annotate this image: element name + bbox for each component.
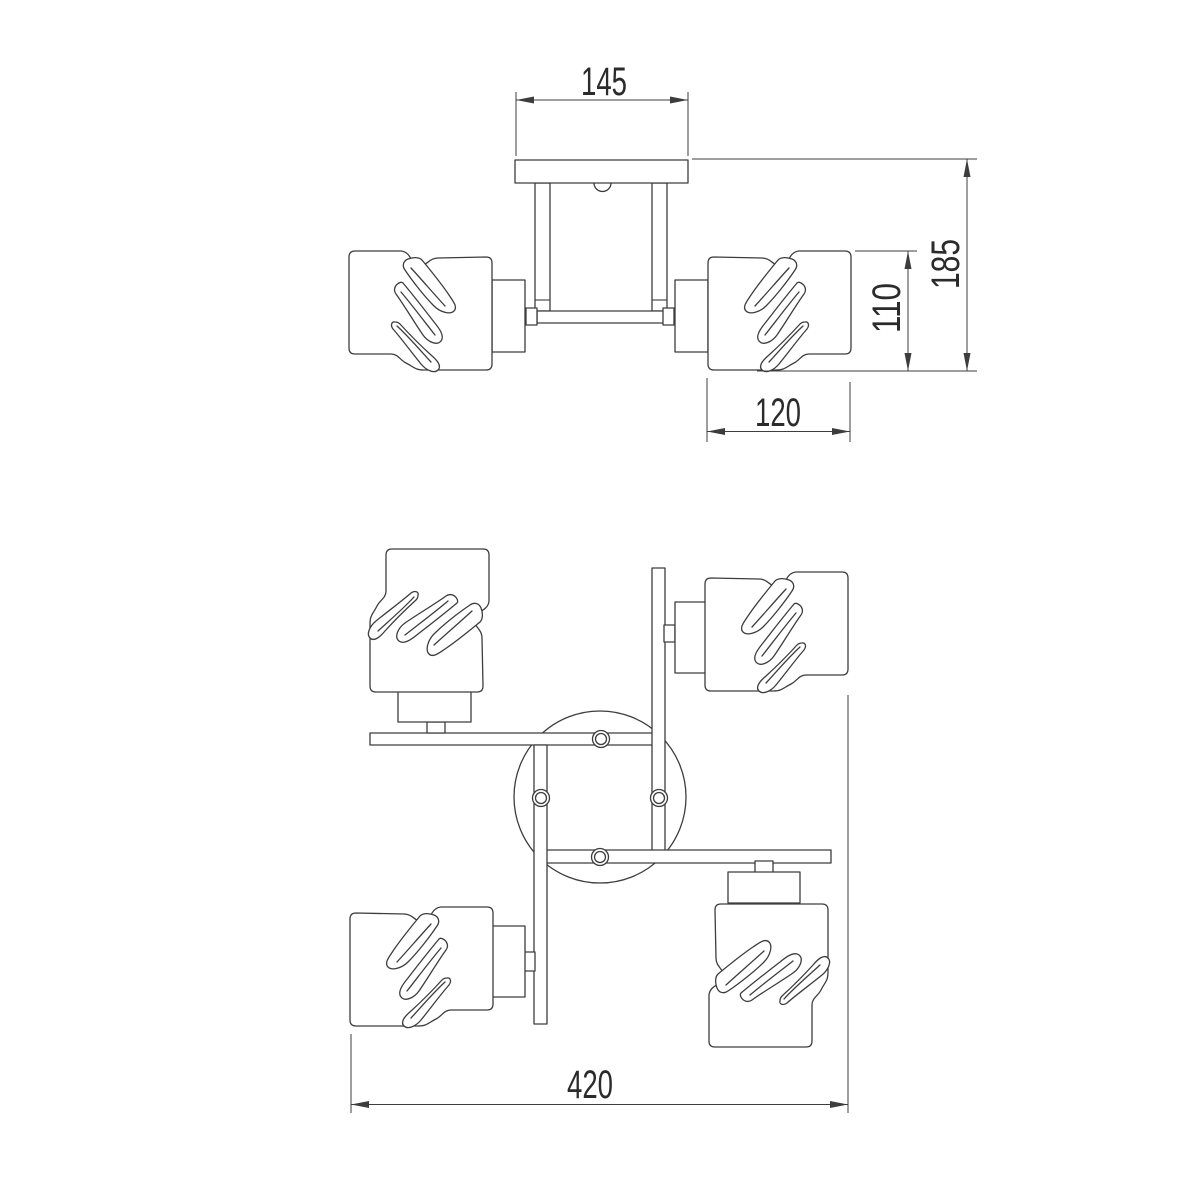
dimension-canopy-width: 145	[516, 60, 688, 156]
lamp-socket-top-right	[675, 602, 707, 673]
ceiling-mount-plate	[515, 160, 688, 183]
plate-knob	[594, 183, 611, 192]
socket-stem-top-right	[664, 625, 675, 642]
lamp-shade-front-right	[708, 251, 851, 372]
screw-head-top	[593, 731, 610, 748]
screw-head-right	[651, 790, 668, 807]
cross-arm	[537, 311, 664, 323]
dimension-drawing: 145 185 110 120	[0, 0, 1200, 1200]
lamp-socket-bottom-left	[492, 926, 525, 997]
arm-connector-right	[663, 308, 674, 325]
stem-post-left	[535, 183, 550, 311]
lamp-socket-bottom-right	[728, 872, 800, 903]
socket-stem-top-left	[427, 722, 445, 733]
lamp-socket-top-left	[398, 690, 471, 722]
arm-right	[652, 568, 665, 851]
screw-head-left	[533, 790, 550, 807]
lamp-socket-right	[675, 280, 708, 352]
lamp-shade-bottom-right	[709, 904, 830, 1047]
top-view: 420	[350, 549, 848, 1113]
stem-post-right	[652, 183, 667, 311]
lamp-shade-top-left	[368, 549, 489, 692]
lamp-shade-bottom-left	[350, 907, 493, 1028]
lamp-shade-front-left	[349, 251, 492, 372]
dimension-label-420: 420	[567, 1063, 613, 1107]
arm-top	[370, 733, 664, 745]
arm-bottom	[535, 850, 831, 863]
dimension-label-145: 145	[581, 60, 627, 104]
dimension-label-185: 185	[924, 239, 968, 289]
dimension-shade-width: 120	[707, 378, 850, 442]
dimension-shade-height: 110	[855, 251, 917, 371]
arm-left	[534, 745, 547, 1024]
dimension-label-120: 120	[755, 391, 801, 435]
technical-drawing-page: 145 185 110 120	[0, 0, 1200, 1200]
lamp-shade-top-right	[705, 572, 848, 693]
lamp-socket-left	[492, 280, 525, 352]
front-view: 145 185 110 120	[349, 60, 977, 442]
arm-connector-left	[526, 308, 537, 325]
dimension-label-110: 110	[865, 283, 909, 333]
socket-stem-bottom-right	[755, 861, 773, 873]
screw-head-bottom	[592, 849, 609, 866]
